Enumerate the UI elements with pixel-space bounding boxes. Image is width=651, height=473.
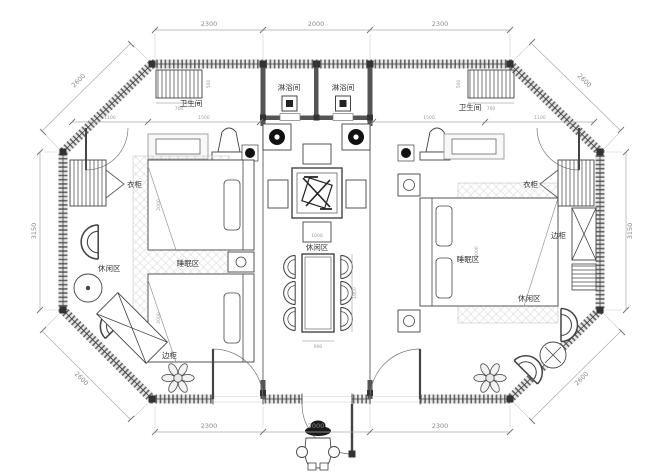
dim-radiator-side-left: 500 — [206, 80, 212, 89]
dining-chair — [341, 281, 353, 304]
bath-right-label: 卫生间 — [459, 102, 482, 112]
dim-table-width: 900 — [314, 344, 323, 350]
tv-console — [444, 134, 504, 159]
bedroom-right-door-arc — [370, 349, 420, 399]
floor-drain-icon — [282, 96, 297, 111]
wardrobe-left: 衣柜 — [70, 160, 142, 206]
dimension-bottom: 2300 2000 2300 — [152, 406, 513, 435]
dim-top-2: 2000 — [308, 20, 325, 28]
sleep-right-label: 睡眠区 — [457, 255, 480, 264]
leisure-center-label: 休闲区 — [306, 242, 329, 252]
bed-single-1: 2000 — [148, 160, 254, 250]
dim-diag-bl: 2600 — [73, 370, 90, 387]
dim-bottom-3: 2300 — [432, 422, 449, 430]
plant-icon — [474, 362, 506, 394]
dimension-diagonal-top-right: 2600 — [514, 39, 624, 149]
dim-bed1: 2000 — [156, 199, 162, 211]
dim-bath-right-a: 1100 — [534, 115, 546, 121]
center-lounge: 1000 休闲区 900 1800 — [268, 144, 366, 350]
door-stop — [349, 451, 356, 458]
plant-icon — [162, 362, 194, 394]
arc-chair — [81, 225, 98, 259]
dim-diag-tr: 2600 — [576, 72, 593, 89]
dining-chair — [284, 307, 296, 330]
shower-room-right: 淋浴间 — [332, 82, 355, 111]
dimension-left: 3150 — [30, 149, 57, 313]
bedroom-right: 2000 睡眠区 衣柜 边柜 休闲区 — [370, 160, 596, 399]
dim-top-3: 2300 — [432, 20, 449, 28]
leisure-left-label: 休闲区 — [98, 263, 121, 273]
bed-single-2: 2000 — [148, 274, 254, 362]
dim-diag-tl: 2600 — [70, 72, 87, 89]
dim-bath-left-b: 1500 — [198, 115, 210, 121]
dim-bottom-1: 2300 — [201, 422, 218, 430]
side-cabinet-right-label: 边柜 — [551, 230, 566, 240]
dimension-diagonal-top-left: 2600 — [40, 41, 148, 149]
shower-left-label: 淋浴间 — [278, 82, 301, 92]
dim-bed2: 2000 — [156, 312, 162, 324]
bed-double: 2000 — [420, 198, 558, 306]
toilet-icon — [212, 128, 242, 160]
wardrobe-left-label: 衣柜 — [127, 179, 142, 189]
floor-plan-page: 淋浴间 淋浴间 700 500 卫生间 1100 1500 — [0, 0, 651, 473]
tea-table: 1000 — [268, 144, 366, 242]
nightstand — [228, 252, 254, 272]
shower-right-label: 淋浴间 — [332, 82, 355, 92]
dim-bottom-2: 2000 — [308, 422, 325, 430]
radiator-cabinet — [156, 70, 202, 98]
door-openings — [213, 394, 420, 405]
dim-radiator-right: 700 — [487, 106, 496, 112]
radiator-cabinet — [468, 70, 514, 98]
shower-room-left: 淋浴间 — [278, 82, 301, 111]
floor-plan-svg: 淋浴间 淋浴间 700 500 卫生间 1100 1500 — [0, 0, 651, 473]
dining-chair — [284, 255, 296, 278]
dining-table: 900 1800 — [284, 254, 358, 350]
dim-right: 3150 — [626, 223, 634, 240]
floor-drain-icon — [336, 96, 351, 111]
drain-box-icon — [242, 145, 258, 161]
dim-bath-left-a: 1100 — [104, 115, 116, 121]
dining-chair — [341, 307, 353, 330]
bath-left-label: 卫生间 — [180, 98, 203, 108]
nightstand — [398, 310, 420, 332]
dimension-top: 2300 2000 2300 — [152, 20, 513, 60]
main-entry — [297, 404, 356, 470]
washbasin-left — [263, 124, 291, 150]
leisure-right-label: 休闲区 — [518, 293, 541, 303]
dim-top-1: 2300 — [201, 20, 218, 28]
sleep-left-label: 睡眠区 — [177, 259, 200, 268]
dim-diag-br: 2600 — [573, 370, 590, 387]
tv-console — [148, 134, 208, 159]
washbasin-right — [342, 124, 370, 150]
dim-bath-right-b: 1500 — [423, 115, 435, 121]
bedroom-left: 2000 2000 睡眠区 衣柜 休闲区 — [70, 156, 263, 399]
dim-left: 3150 — [30, 223, 38, 240]
dim-radiator-side-right: 500 — [456, 80, 462, 89]
wardrobe-right-label: 衣柜 — [523, 179, 538, 189]
drain-box-icon — [398, 145, 414, 161]
nightstand — [398, 174, 420, 196]
dimension-right: 3150 — [606, 149, 634, 313]
dim-tea-table: 1000 — [311, 233, 323, 239]
dim-table-length: 1800 — [352, 287, 358, 299]
dining-chair — [284, 281, 296, 304]
dining-chair — [341, 255, 353, 278]
side-cabinet-left-label: 边柜 — [162, 350, 177, 360]
